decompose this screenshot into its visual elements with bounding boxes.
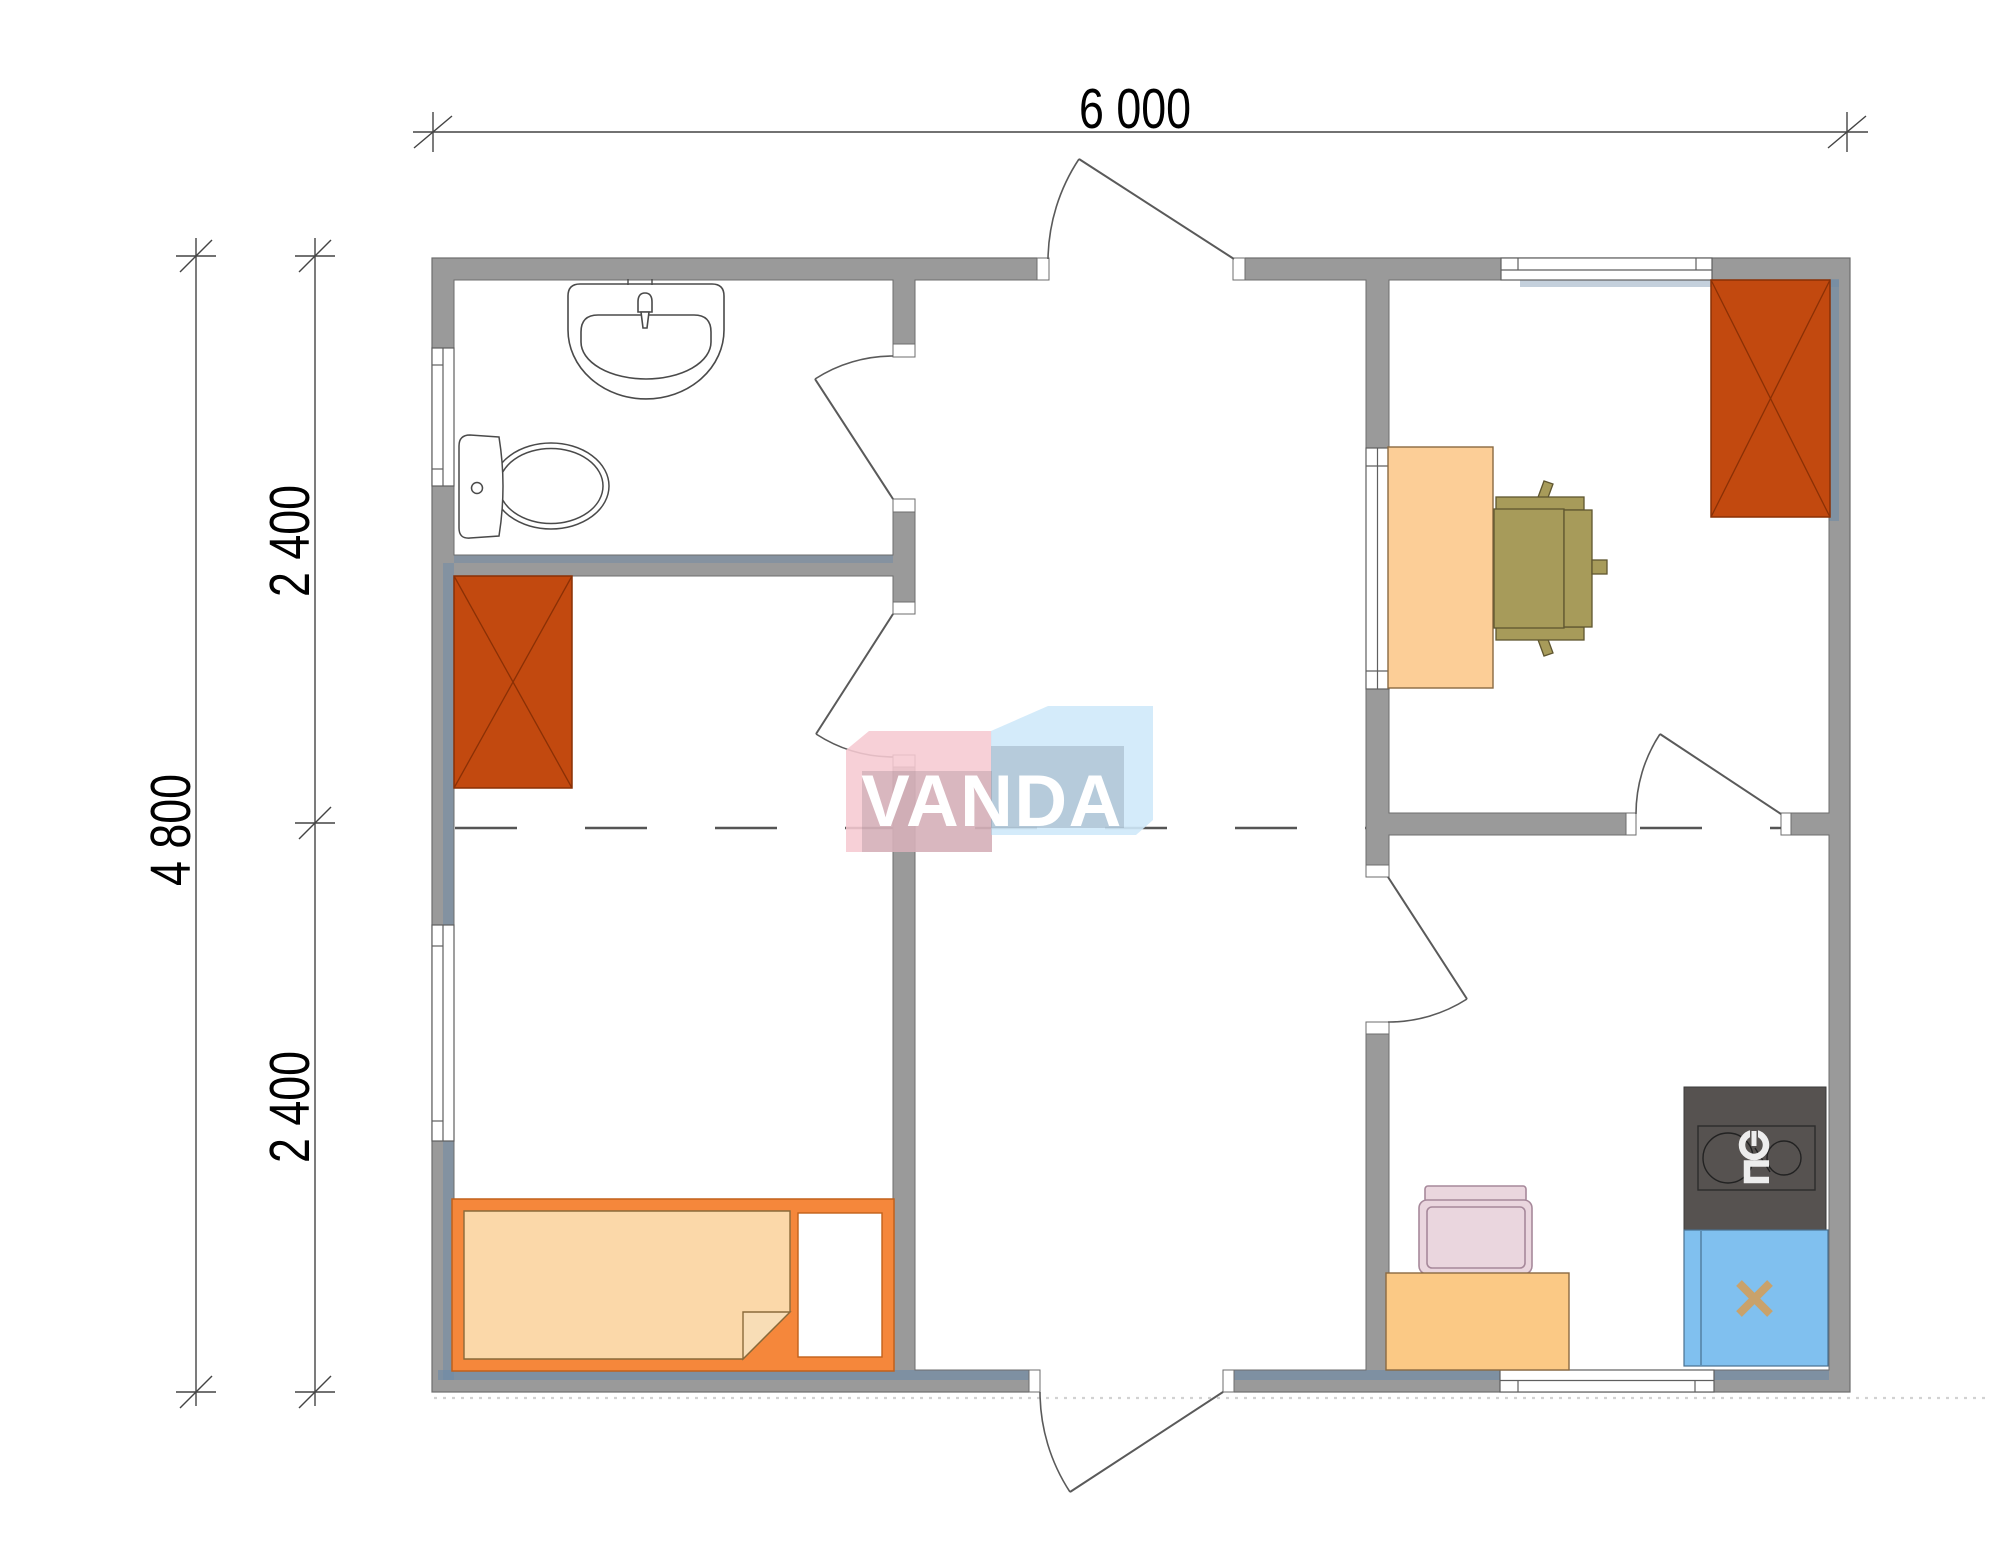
svg-text:VANDA: VANDA bbox=[861, 761, 1123, 842]
svg-text:2 400: 2 400 bbox=[258, 485, 322, 597]
svg-text:2 400: 2 400 bbox=[258, 1051, 322, 1163]
svg-text:4 800: 4 800 bbox=[139, 774, 203, 886]
svg-text:6 000: 6 000 bbox=[1079, 77, 1191, 141]
